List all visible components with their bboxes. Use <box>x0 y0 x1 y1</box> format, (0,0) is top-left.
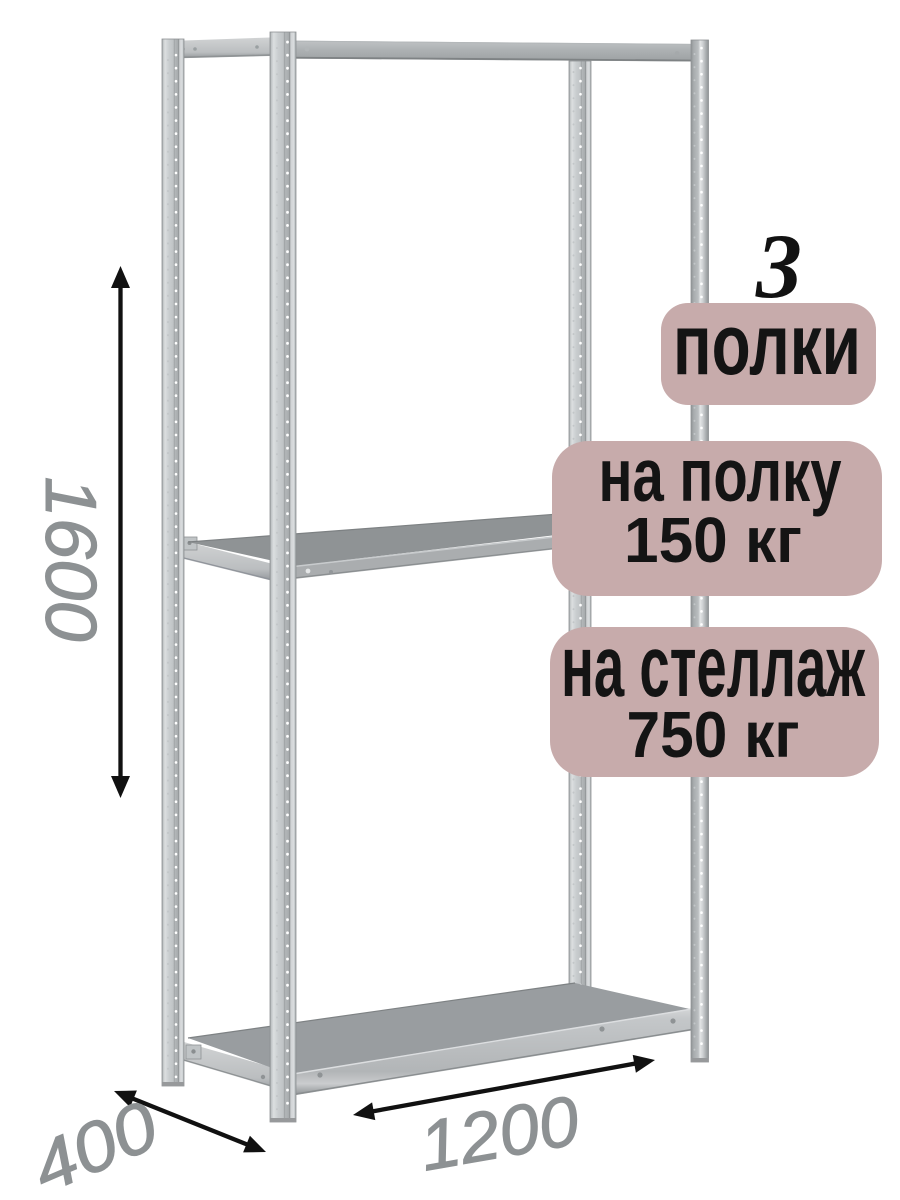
svg-text:750 кг: 750 кг <box>627 698 800 771</box>
svg-text:1600: 1600 <box>30 477 110 642</box>
svg-text:150 кг: 150 кг <box>624 504 802 576</box>
svg-text:полки: полки <box>673 297 861 393</box>
